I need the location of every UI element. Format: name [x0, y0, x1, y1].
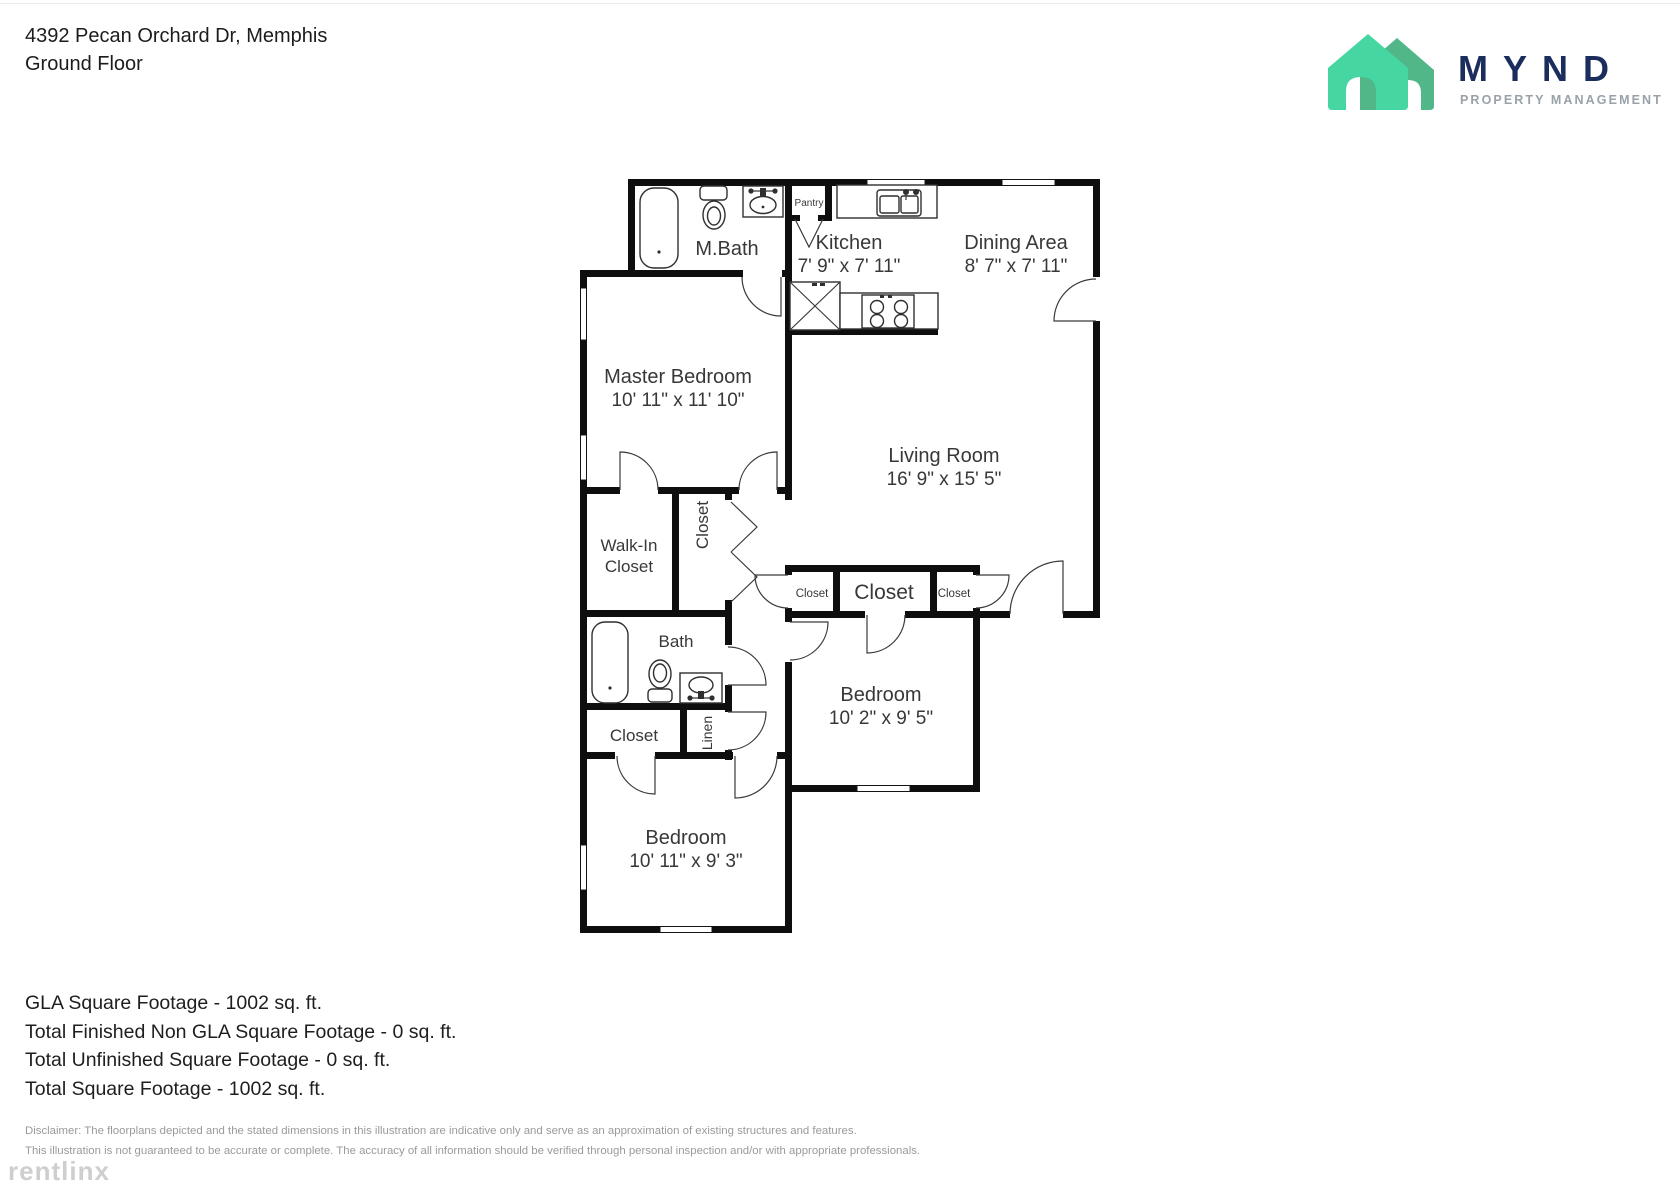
bath-fixtures	[592, 622, 722, 703]
disclaimer-line-1: Disclaimer: The floorplans depicted and …	[25, 1122, 920, 1142]
door-arc	[1010, 561, 1063, 614]
toilet-tank-icon	[700, 186, 727, 200]
room-label-linen: Linen	[699, 716, 715, 750]
window	[660, 927, 712, 933]
disclaimer: Disclaimer: The floorplans depicted and …	[25, 1122, 920, 1161]
room-label-bedroom-right: Bedroom	[840, 684, 921, 706]
window	[581, 288, 587, 340]
room-label-master-bedroom: Master Bedroom	[604, 366, 752, 388]
room-label-living-room: Living Room	[888, 445, 999, 467]
gla-square-footage: GLA Square Footage - 1002 sq. ft.	[25, 989, 456, 1018]
room-dims-bedroom-bottom: 10' 11" x 9' 3"	[629, 851, 742, 872]
unfinished-square-footage: Total Unfinished Square Footage - 0 sq. …	[25, 1046, 456, 1075]
room-label-closet-center: Closet	[854, 581, 914, 604]
room-label-hall-closet: Closet	[693, 501, 712, 549]
bifold-door-icon	[731, 502, 757, 602]
room-label-bath: Bath	[659, 632, 694, 651]
total-square-footage: Total Square Footage - 1002 sq. ft.	[25, 1075, 456, 1104]
room-dims-dining: 8' 7" x 7' 11"	[965, 256, 1068, 277]
room-dims-master-bedroom: 10' 11" x 11' 10"	[611, 390, 744, 411]
bathtub-icon	[592, 622, 628, 703]
room-label-dining: Dining Area	[964, 232, 1068, 254]
door-arc	[742, 277, 781, 316]
room-label-walkin-closet-line2: Closet	[605, 557, 653, 576]
window	[857, 786, 910, 792]
non-gla-square-footage: Total Finished Non GLA Square Footage - …	[25, 1018, 456, 1047]
room-dims-living-room: 16' 9" x 15' 5"	[887, 469, 1002, 490]
room-dims-kitchen: 7' 9" x 7' 11"	[798, 256, 901, 277]
room-label-bedroom-bottom: Bedroom	[645, 827, 726, 849]
door-arc	[735, 756, 777, 798]
rentlinx-watermark: rentlinx	[8, 1156, 110, 1187]
room-label-closet-bottom: Closet	[610, 726, 658, 745]
door-arc	[976, 575, 1009, 608]
toilet-tank-icon	[648, 689, 672, 702]
door-arc	[755, 575, 788, 608]
square-footage-summary: GLA Square Footage - 1002 sq. ft. Total …	[25, 989, 456, 1103]
room-label-walkin-closet-line1: Walk-In	[601, 536, 658, 555]
room-label-kitchen: Kitchen	[816, 232, 883, 254]
room-label-closet-small-right: Closet	[938, 588, 971, 600]
room-dims-bedroom-right: 10' 2" x 9' 5"	[829, 708, 933, 729]
door-arc	[790, 622, 828, 660]
door-arc	[620, 452, 658, 490]
door-arc	[739, 452, 777, 490]
door-arc	[728, 712, 766, 750]
floorplan-page: 4392 Pecan Orchard Dr, Memphis Ground Fl…	[0, 0, 1680, 1188]
window	[1002, 180, 1055, 186]
window	[581, 845, 587, 890]
room-label-closet-small-left: Closet	[796, 588, 829, 600]
disclaimer-line-2: This illustration is not guaranteed to b…	[25, 1142, 920, 1162]
door-arc	[728, 647, 766, 685]
room-label-mbath: M.Bath	[695, 238, 758, 260]
door-arc	[1054, 279, 1096, 321]
door-arc	[867, 615, 905, 653]
bathtub-icon	[640, 188, 678, 268]
window	[581, 435, 587, 480]
room-label-pantry: Pantry	[795, 198, 824, 209]
door-arc	[617, 756, 655, 794]
